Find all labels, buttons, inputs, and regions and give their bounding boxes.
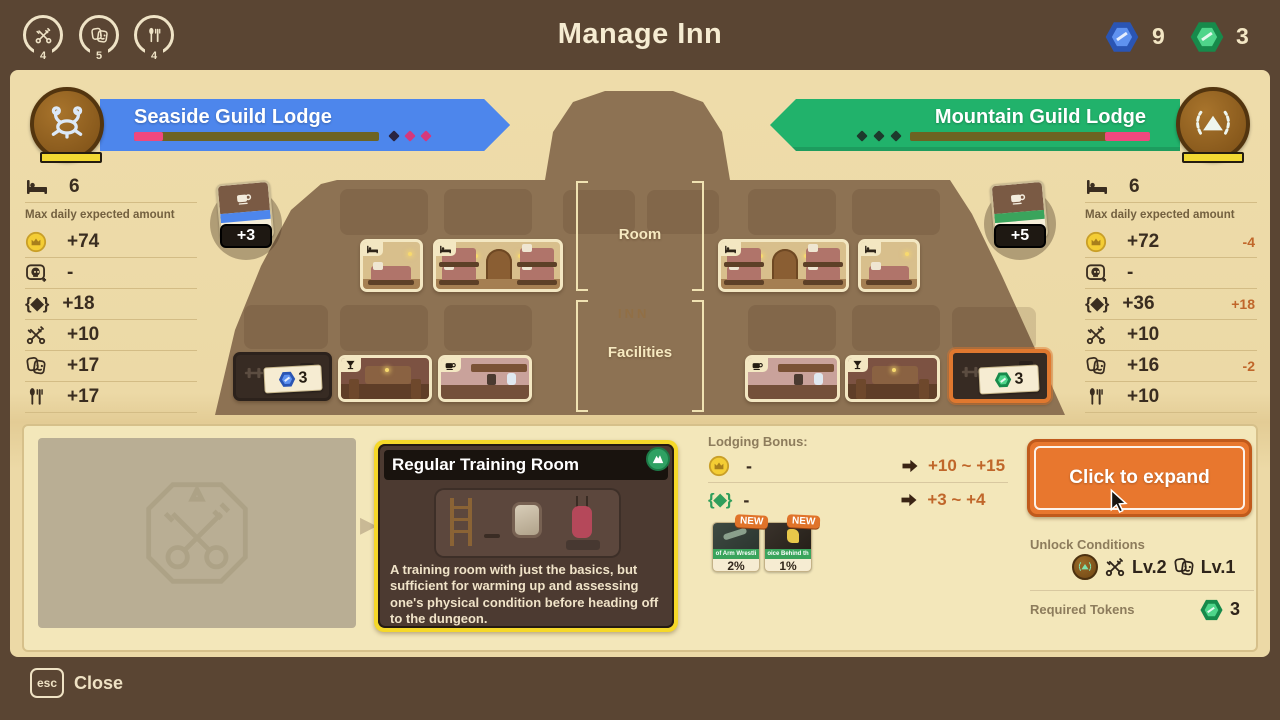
empty-room-slot[interactable] [340,189,428,235]
mountain-level-bar [1182,152,1244,163]
facilities-bracket-right [692,300,704,412]
stat-delta: -2 [1243,358,1255,374]
facility-tile-cafe-left[interactable] [438,355,532,402]
bonus-card-name: oice Behind th [765,549,811,559]
bed-count: 6 [1129,176,1140,198]
gem-icon: {◆} [708,490,731,510]
divider [708,482,1008,483]
card-description: A training room with just the basics, bu… [390,562,664,628]
empty-facility-slot[interactable] [952,307,1036,351]
bonus-card-name: of Arm Wrestli [713,549,759,559]
token-cost-plate: 3 [263,365,322,394]
divider [1030,590,1254,591]
bed-icon [864,243,877,256]
laurel-mountain-icon [1077,559,1093,575]
room-bracket-left [576,181,588,291]
stat-delta: -4 [1243,234,1255,250]
gauge-value: 5 [96,50,102,62]
required-tokens-label: Required Tokens [1030,602,1135,617]
stat-row-keys: +10 [25,320,197,351]
crossed-keys-emblem-watermark [139,475,255,591]
seaside-boost-card[interactable]: 5% +3 [208,182,288,268]
bed-icon [1085,175,1109,199]
room-tile-single-bed[interactable] [360,239,423,292]
stat-value: +10 [67,324,99,346]
close-button[interactable]: Close [74,673,123,694]
empty-room-slot[interactable] [748,189,836,235]
stat-value: +74 [67,231,99,253]
facilities-section-label: Facilities [592,344,688,361]
stat-value: - [1127,262,1133,284]
gauge-masks: 5 [79,15,119,55]
stat-row-cutlery: +17 [25,382,197,413]
goblet-icon [344,359,357,372]
stat-value: +16 [1127,355,1159,377]
empty-room-slot[interactable] [444,189,532,235]
stat-row-gem: {◆} +36 +18 [1085,289,1257,320]
bonus-current: - [743,490,749,511]
lodging-bonus-row-gem: {◆} - +3 ~ +4 [708,488,1008,512]
token-cost: 3 [298,369,308,387]
facilities-bracket-left [576,300,588,412]
empty-room-slot[interactable] [852,189,940,235]
stat-value: +17 [67,386,99,408]
training-room-illustration [434,488,621,558]
stat-row-gem: {◆} +18 [25,289,197,320]
arrow-right-icon [899,490,919,510]
unlock-conditions-row: Lv.2 Lv.1 [1072,554,1235,580]
empty-facility-slot[interactable] [340,305,428,351]
cutlery-icon [1085,386,1107,408]
new-badge: NEW [786,514,820,529]
new-badge: NEW [734,514,768,529]
coffee-cup-icon [751,359,764,372]
mountain-boost-card[interactable]: 3% +5 [982,182,1062,268]
skull-icon [1085,262,1107,284]
coffee-cup-icon [1008,188,1028,208]
stat-value: +72 [1127,231,1159,253]
empty-selection-box [38,438,356,628]
mirror [512,502,542,538]
bonus-card-percent: 2% [713,559,759,573]
facility-tile-cafe-right[interactable] [745,355,840,402]
room-tile-bunk-double[interactable] [433,239,563,292]
seaside-guild-emblem [30,87,104,161]
empty-facility-slot[interactable] [444,305,532,351]
masks-icon [1173,556,1195,578]
card-title: Regular Training Room [392,455,579,475]
facility-tile-bar-right[interactable] [845,355,940,402]
green-token-icon [994,371,1012,388]
dumbbell-icon [243,362,265,384]
masks-icon [90,26,109,45]
mountain-stats-column: 6 Max daily expected amount +72 -4 - {◆}… [1085,172,1257,413]
facility-tile-bar-left[interactable] [338,355,432,402]
bed-icon [724,243,737,256]
unlock-level: Lv.2 [1132,557,1167,578]
token-cost: 3 [1014,370,1024,388]
max-daily-label: Max daily expected amount [1085,203,1257,227]
crab-icon [45,102,89,146]
lodging-bonus-label: Lodging Bonus: [708,434,808,449]
max-daily-label: Max daily expected amount [25,203,197,227]
skull-icon [25,262,47,284]
stat-row-coin: +74 [25,227,197,258]
cutlery-icon [145,26,164,45]
arrow-right-icon [900,456,920,476]
room-bracket-right [692,181,704,291]
coin-icon [708,455,730,477]
stat-row-skull: - [25,258,197,289]
mountain-guild-emblem [1176,87,1250,161]
crossed-keys-icon [34,26,53,45]
gauge-crossed-keys: 4 [23,15,63,55]
lodging-bonus-row-coin: - +10 ~ +15 [708,454,1008,478]
stat-row-coin: +72 -4 [1085,227,1257,258]
bed-count-row: 6 [25,172,197,203]
gauge-value: 4 [40,50,46,62]
facility-tile-training-locked-left[interactable]: 3 [233,352,332,401]
unlock-level: Lv.1 [1201,557,1236,578]
stat-value: +10 [1127,386,1159,408]
coffee-cup-icon [234,188,254,208]
token-cost-plate: 3 [978,364,1039,394]
mountain-lodge-badge [646,447,670,471]
mountain-emblem-icon [1072,554,1098,580]
empty-facility-slot[interactable] [748,305,836,351]
stat-value: +10 [1127,324,1159,346]
empty-facility-slot[interactable] [852,305,940,351]
gem-icon: {◆} [1085,294,1108,314]
esc-key-label: esc [37,676,57,690]
guest-bonus-card[interactable]: NEW of Arm Wrestli 2% [712,522,760,572]
stat-row-keys: +10 [1085,320,1257,351]
gem-icon: {◆} [25,294,48,314]
stat-delta: +18 [1231,296,1255,312]
bed-icon [439,243,452,256]
stat-row-masks: +17 [25,351,197,382]
seaside-stats-column: 6 Max daily expected amount +74 - {◆} +1… [25,172,197,413]
click-to-expand-button[interactable]: Click to expand [1027,439,1252,517]
facility-tile-training-locked-selected[interactable]: 3 [949,349,1051,403]
seaside-level-bar [40,152,102,163]
bed-icon [25,175,49,199]
stat-value: +18 [62,293,94,315]
detail-panel: ▶ Regular Training Room [22,424,1258,652]
stat-row-masks: +16 -2 [1085,351,1257,382]
blue-token-icon [278,371,296,388]
crossed-keys-icon [1104,556,1126,578]
masks-icon [25,355,47,377]
room-tile-bunk-double[interactable] [718,239,849,292]
punching-bag [572,506,592,538]
stat-value: - [67,262,73,284]
crossed-keys-icon [25,324,47,346]
bonus-range: +3 ~ +4 [927,490,985,510]
blue-token-count: 9 [1152,23,1165,50]
stat-row-cutlery: +10 [1085,382,1257,413]
seaside-progress-bar [134,132,379,141]
mountain-lodge-banner: Mountain Guild Lodge [770,99,1180,151]
goblet-icon [851,359,864,372]
room-tile-single-bed[interactable] [858,239,920,292]
required-token-count: 3 [1230,599,1240,620]
gauge-cutlery: 4 [134,15,174,55]
seaside-lodge-name: Seaside Guild Lodge [134,106,332,129]
stat-value: +17 [67,355,99,377]
room-section-label: Room [600,226,680,243]
coin-icon [25,231,47,253]
coffee-cup-icon [444,359,457,372]
unlock-conditions-label: Unlock Conditions [1030,537,1145,552]
masks-icon [1085,355,1107,377]
coin-icon [1085,231,1107,253]
boost-bonus: +3 [220,224,272,248]
bed-count: 6 [69,176,80,198]
card-title-bar: Regular Training Room [384,450,668,480]
stat-value: +36 [1122,293,1154,315]
bonus-card-percent: 1% [765,559,811,573]
cutlery-icon [25,386,47,408]
mountain-icon [651,452,665,466]
training-room-card: Regular Training Room [374,440,678,632]
page-title: Manage Inn [0,18,1280,51]
mouse-cursor-icon [1106,488,1132,514]
expand-button-label: Click to expand [1069,467,1209,489]
green-token-count: 3 [1236,23,1249,50]
bed-icon [366,243,379,256]
seaside-lodge-banner: Seaside Guild Lodge [100,99,510,151]
esc-key-button[interactable]: esc [30,668,64,698]
mountain-progress-bar [910,132,1150,141]
inn-sign: INN [618,306,649,321]
manage-inn-screen: Manage Inn 4 5 4 9 3 INN Room Facilities [0,0,1280,720]
crossed-keys-icon [1085,324,1107,346]
boost-bonus: +5 [994,224,1046,248]
bonus-current: - [746,456,752,477]
green-token-icon [1200,599,1223,621]
stat-row-skull: - [1085,258,1257,289]
guest-bonus-card[interactable]: NEW oice Behind th 1% [764,522,812,572]
bed-count-row: 6 [1085,172,1257,203]
empty-facility-slot[interactable] [244,305,328,349]
mountain-lodge-name: Mountain Guild Lodge [935,106,1146,129]
bonus-range: +10 ~ +15 [928,456,1005,476]
gauge-value: 4 [151,50,157,62]
laurel-mountain-icon [1191,102,1235,146]
